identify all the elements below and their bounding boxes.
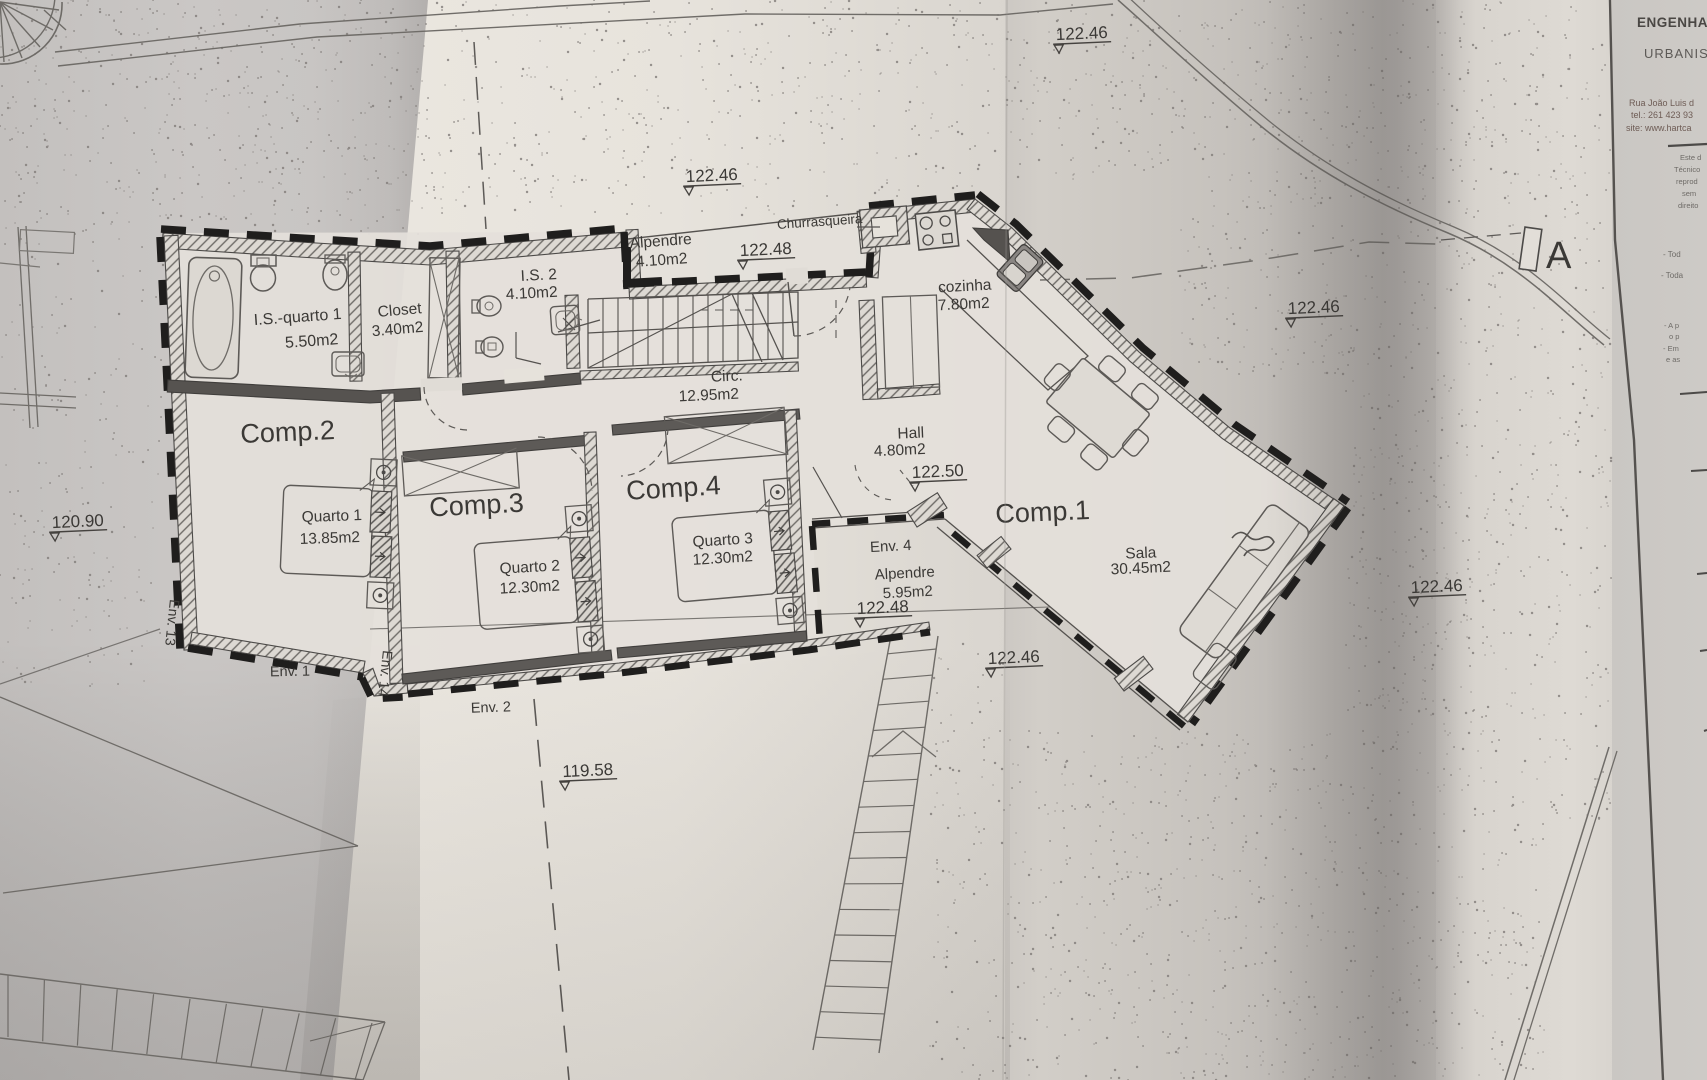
svg-text:4.80m2: 4.80m2 — [874, 441, 926, 460]
svg-text:Este d: Este d — [1680, 153, 1701, 162]
svg-text:Comp.1: Comp.1 — [995, 495, 1091, 529]
svg-text:13.85m2: 13.85m2 — [299, 529, 360, 548]
svg-text:12.95m2: 12.95m2 — [678, 386, 739, 406]
svg-text:- Toda: - Toda — [1661, 271, 1684, 280]
svg-text:I.S. 2: I.S. 2 — [520, 266, 557, 285]
svg-text:cozinha: cozinha — [938, 277, 993, 297]
svg-text:Env. 4: Env. 4 — [870, 537, 912, 556]
svg-text:Técnico: Técnico — [1674, 165, 1700, 174]
svg-text:122.50: 122.50 — [911, 461, 964, 482]
svg-text:reprod: reprod — [1676, 177, 1698, 186]
svg-text:Comp.4: Comp.4 — [625, 470, 721, 506]
svg-text:Alpendre: Alpendre — [874, 563, 935, 583]
svg-text:ENGENHA: ENGENHA — [1637, 15, 1707, 30]
svg-text:URBANIS: URBANIS — [1644, 46, 1707, 61]
svg-text:122.46: 122.46 — [685, 165, 738, 186]
svg-text:Comp.3: Comp.3 — [429, 488, 525, 523]
svg-text:12.30m2: 12.30m2 — [499, 577, 560, 597]
svg-text:122.48: 122.48 — [739, 239, 792, 260]
svg-text:- Tod: - Tod — [1663, 250, 1681, 259]
svg-text:direito: direito — [1678, 201, 1698, 210]
svg-text:site: www.hartca: site: www.hartca — [1626, 123, 1692, 133]
svg-text:o p: o p — [1669, 332, 1679, 341]
svg-text:Comp.2: Comp.2 — [240, 415, 336, 449]
svg-text:120.90: 120.90 — [51, 511, 104, 532]
svg-text:A: A — [1546, 235, 1572, 277]
svg-text:Quarto 1: Quarto 1 — [301, 507, 362, 526]
svg-text:4.10m2: 4.10m2 — [635, 250, 688, 271]
svg-text:Rua João Luis d: Rua João Luis d — [1629, 98, 1694, 108]
svg-text:sem: sem — [1682, 189, 1696, 198]
svg-text:- A p: - A p — [1664, 321, 1679, 330]
svg-text:30.45m2: 30.45m2 — [1110, 559, 1171, 579]
svg-text:- Em: - Em — [1663, 344, 1679, 353]
svg-text:Env. 1: Env. 1 — [270, 664, 310, 681]
svg-text:Hall: Hall — [897, 424, 924, 442]
svg-text:Quarto 2: Quarto 2 — [499, 557, 560, 577]
svg-text:e as: e as — [1666, 355, 1680, 364]
svg-text:122.48: 122.48 — [856, 597, 909, 618]
svg-text:Circ.: Circ. — [711, 367, 744, 385]
svg-text:122.46: 122.46 — [1055, 23, 1108, 44]
svg-text:tel.: 261 423 93: tel.: 261 423 93 — [1631, 110, 1693, 120]
svg-text:4.10m2: 4.10m2 — [506, 284, 559, 304]
svg-text:7.80m2: 7.80m2 — [938, 295, 991, 315]
